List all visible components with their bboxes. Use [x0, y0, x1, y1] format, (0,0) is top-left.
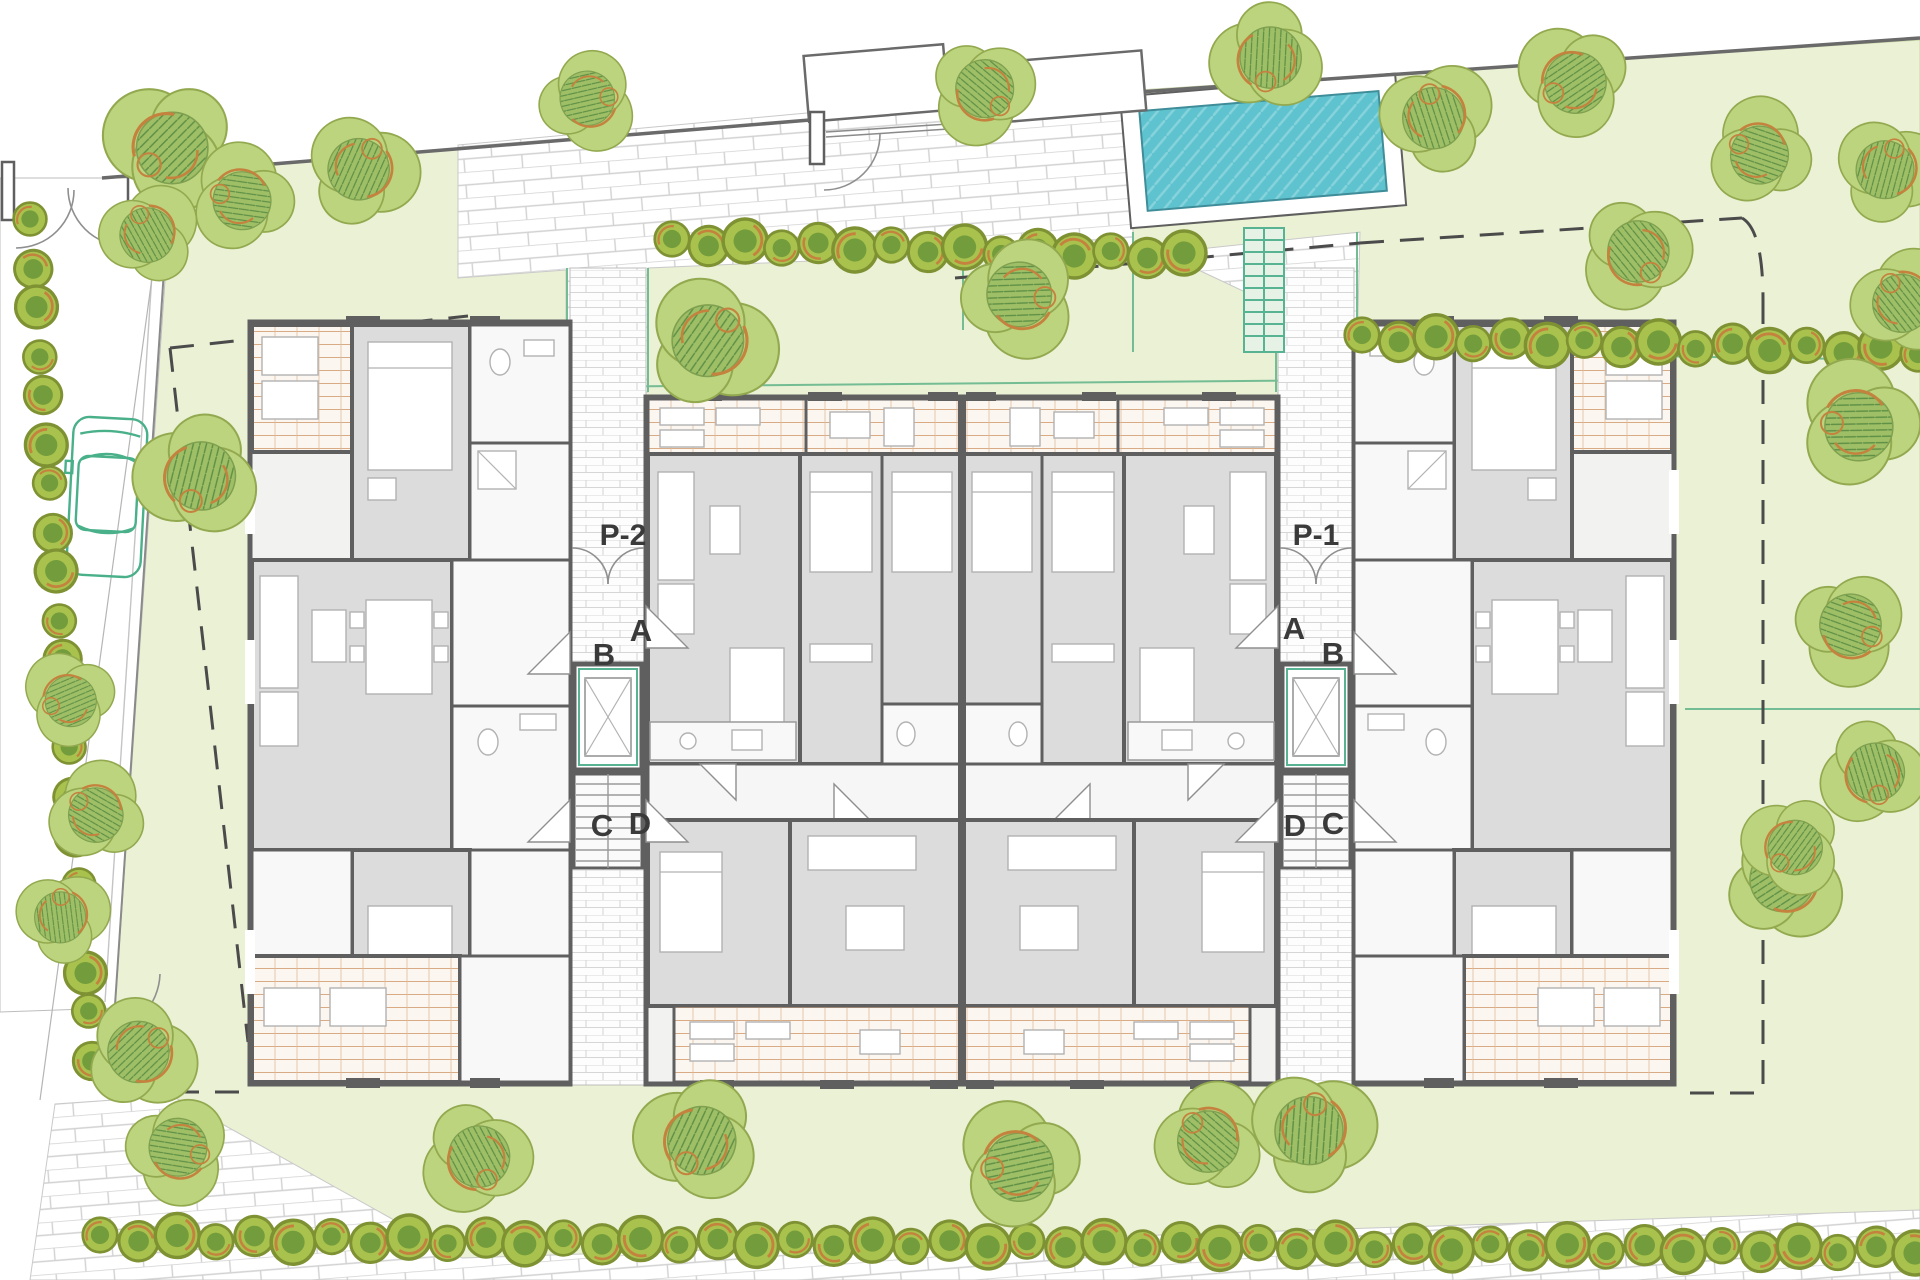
door-label-a-right: A: [1283, 611, 1305, 646]
hedge-bush-icon: [14, 203, 47, 236]
hedge-bush-icon: [1161, 230, 1208, 277]
pedestrian-gate-recess: [804, 44, 949, 121]
gate-post: [810, 112, 824, 164]
party-wall: [958, 397, 966, 1084]
door-label-a-left: A: [630, 613, 652, 648]
hedge-bush-icon: [83, 1218, 118, 1253]
hedge-bush-icon: [617, 1215, 664, 1262]
door-label-d-left: D: [629, 806, 651, 841]
hedge-bush-icon: [269, 1218, 317, 1266]
hedge-bush-icon: [1524, 322, 1572, 370]
entrance-label-right: P-1: [1293, 519, 1340, 552]
hedge-bush-icon: [831, 226, 879, 274]
door-label-c-right: C: [1322, 806, 1344, 841]
hedge-bush-icon: [24, 422, 69, 467]
entrance-label-left: P-2: [600, 519, 647, 552]
gate-post: [2, 162, 14, 220]
garden-stair: [1244, 228, 1284, 352]
door-label-c-left: C: [591, 808, 613, 843]
hedge-bush-icon: [1345, 318, 1380, 353]
site-plan-sheet: P-2 P-1 A B C D A B D C: [0, 0, 1920, 1280]
hedge-bush-icon: [655, 222, 690, 257]
pool-water: [1139, 91, 1387, 211]
hedge-bush-icon: [1545, 1222, 1590, 1267]
hedge-bush-icon: [814, 1226, 854, 1266]
floor-plan-canvas: P-2 P-1 A B C D A B D C: [0, 0, 1920, 1280]
door-label-b-left: B: [593, 637, 615, 672]
hedge-bush-icon: [1356, 1231, 1392, 1267]
door-label-d-right: D: [1284, 808, 1306, 843]
door-label-b-right: B: [1322, 636, 1344, 671]
